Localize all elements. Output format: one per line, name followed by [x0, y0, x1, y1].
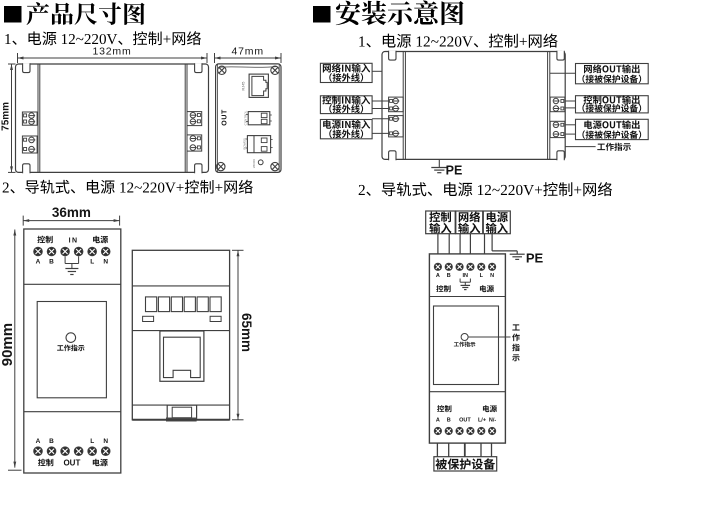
svg-text:A: A — [36, 259, 41, 266]
svg-text:65mm: 65mm — [239, 313, 254, 352]
svg-text:L: L — [90, 259, 94, 266]
svg-text:90mm: 90mm — [0, 323, 16, 366]
svg-text:N: N — [490, 273, 494, 279]
svg-text:A: A — [436, 273, 440, 279]
svg-text:CONTROL: CONTROL — [243, 110, 247, 125]
svg-text:36mm: 36mm — [52, 205, 91, 220]
svg-text:A: A — [36, 438, 41, 445]
svg-text:RJ45: RJ45 — [242, 82, 246, 91]
svg-text:B: B — [49, 259, 54, 266]
svg-text:132mm: 132mm — [92, 46, 131, 58]
svg-text:N/-: N/- — [489, 417, 497, 423]
svg-text:WORK: WORK — [252, 159, 256, 168]
svg-text:75mm: 75mm — [1, 102, 12, 131]
svg-text:47mm: 47mm — [232, 46, 264, 58]
svg-text:POWER: POWER — [243, 138, 247, 150]
svg-text:B: B — [447, 417, 451, 423]
svg-text:IN: IN — [69, 238, 79, 245]
svg-text:L/+: L/+ — [478, 417, 486, 423]
svg-text:OUT: OUT — [459, 417, 471, 423]
svg-text:PE: PE — [526, 251, 544, 266]
svg-text:OUT: OUT — [63, 459, 80, 468]
svg-text:N: N — [103, 438, 108, 445]
svg-text:B: B — [49, 438, 54, 445]
svg-text:B: B — [447, 273, 451, 279]
svg-text:PE: PE — [446, 164, 463, 178]
svg-text:A: A — [436, 417, 440, 423]
svg-text:OUT: OUT — [221, 109, 228, 126]
svg-text:N: N — [103, 259, 108, 266]
svg-text:L: L — [90, 438, 94, 445]
svg-text:IN: IN — [462, 273, 468, 279]
